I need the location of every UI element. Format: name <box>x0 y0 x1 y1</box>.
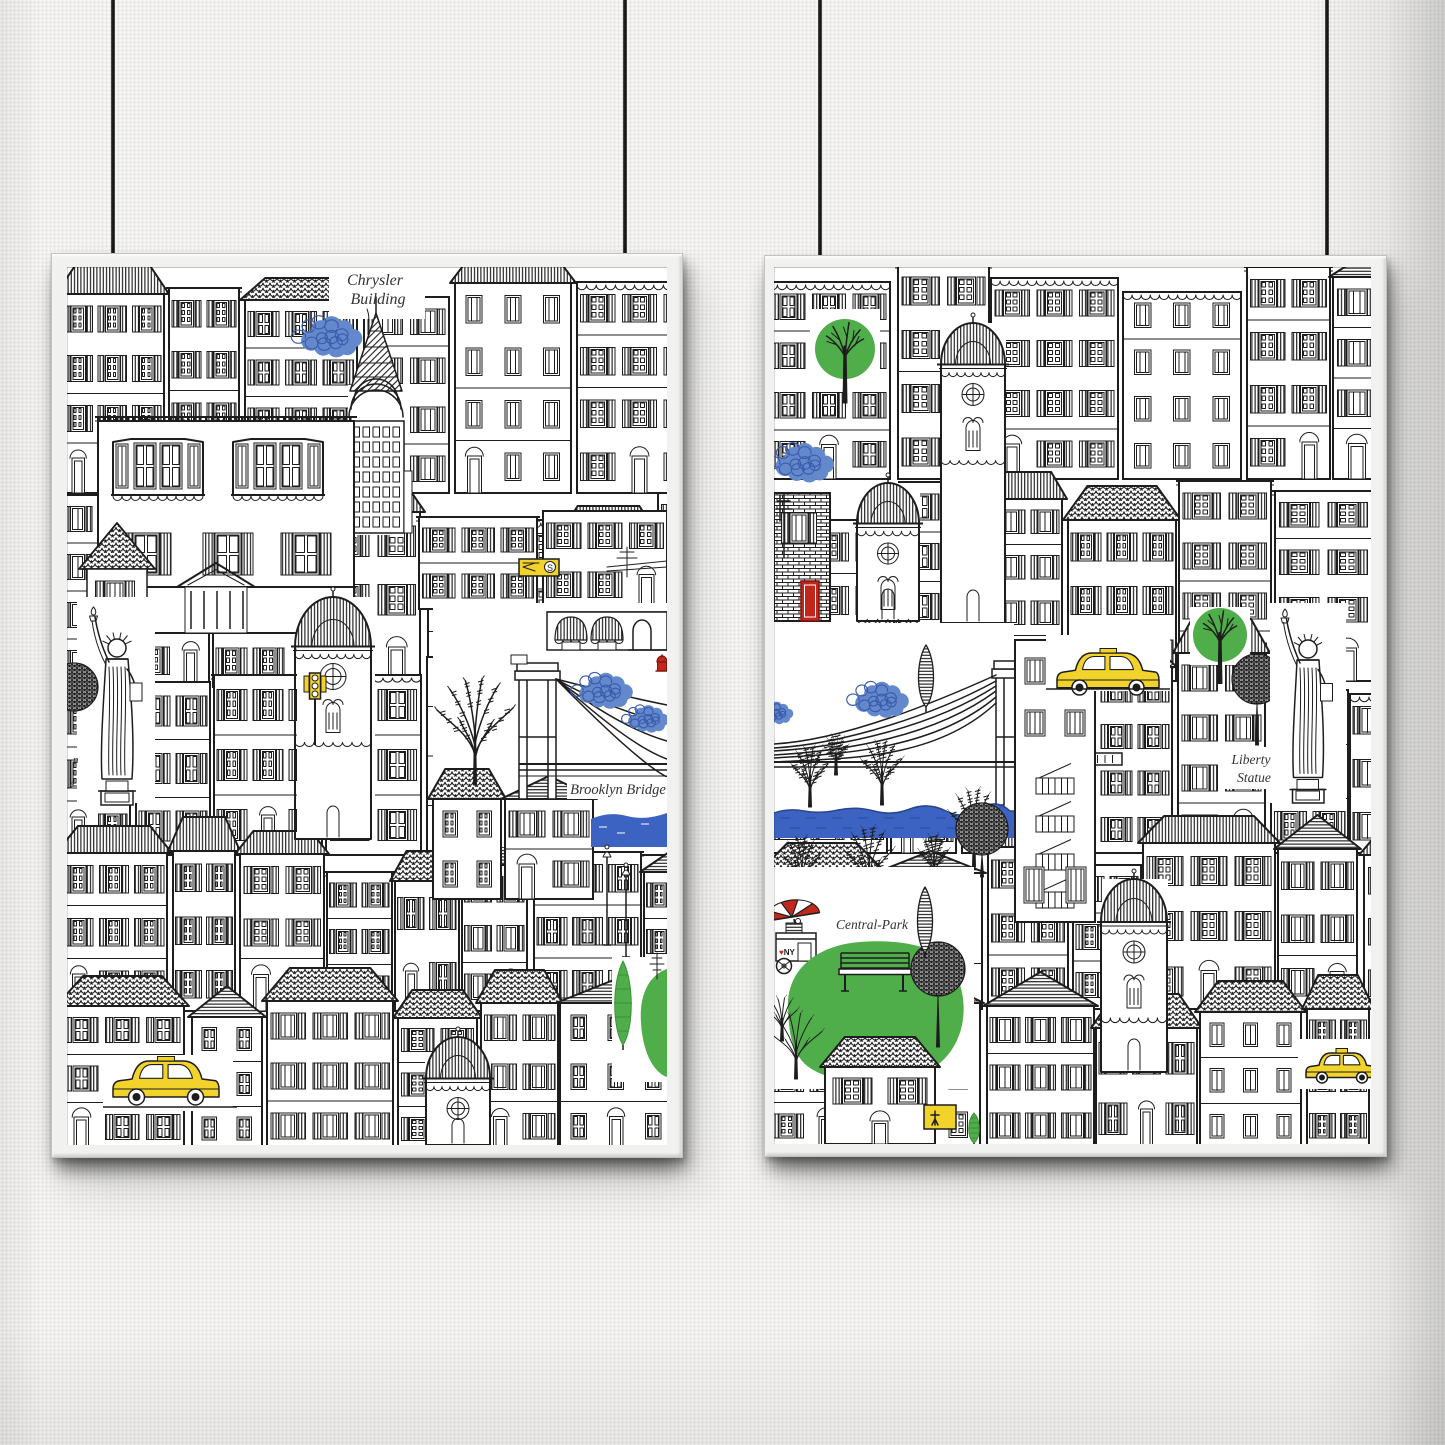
svg-text:S: S <box>547 563 553 573</box>
svg-text:e: e <box>70 778 75 790</box>
svg-text:Brooklyn Bridge: Brooklyn Bridge <box>570 782 666 798</box>
svg-text:Liberty: Liberty <box>1231 752 1271 767</box>
svg-text:Building: Building <box>350 291 405 308</box>
svg-text:Statue: Statue <box>1237 770 1271 785</box>
svg-text:Central-Park: Central-Park <box>836 917 909 932</box>
svg-text:n: n <box>73 754 79 766</box>
svg-text:Chrysler: Chrysler <box>347 272 404 289</box>
svg-text:♥NY: ♥NY <box>779 948 796 957</box>
